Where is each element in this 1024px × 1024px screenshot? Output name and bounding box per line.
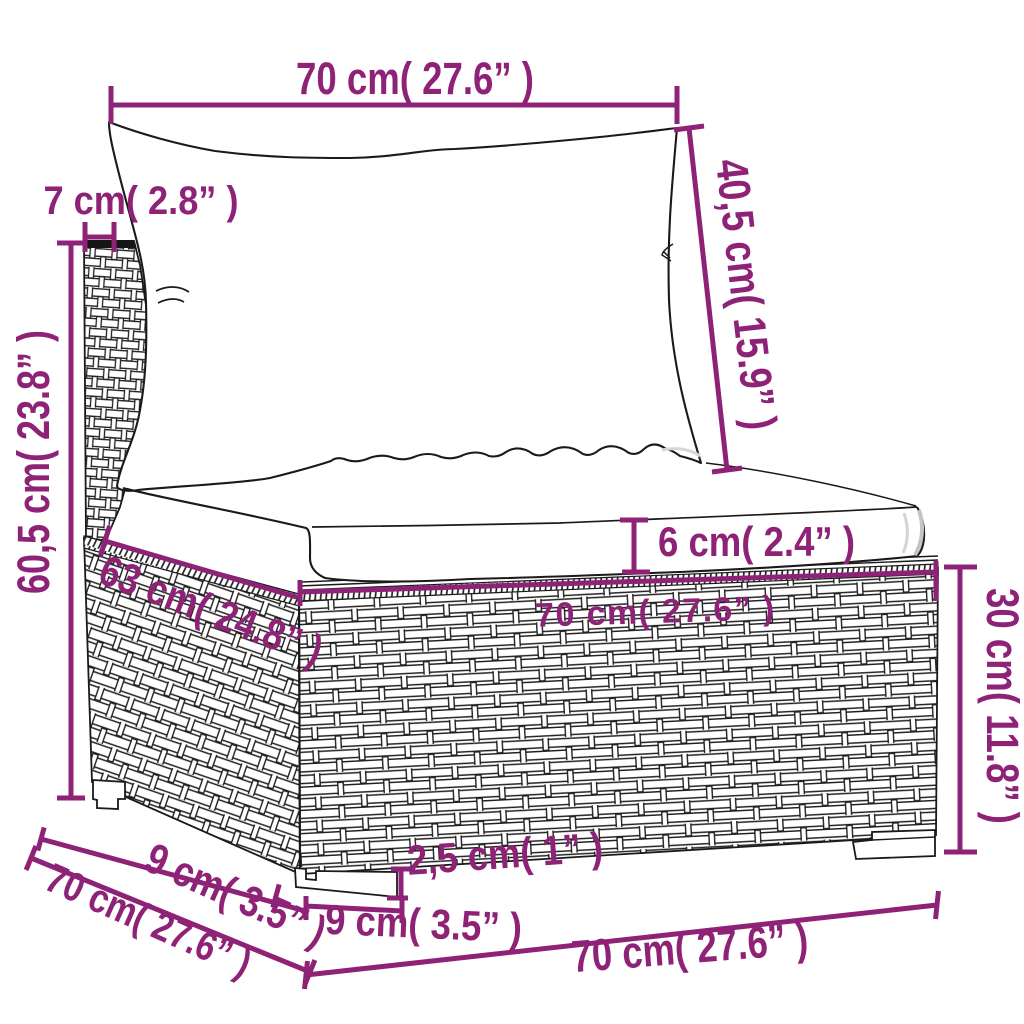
svg-text:60,5 cm( 23.8” ): 60,5 cm( 23.8” ) bbox=[8, 330, 59, 594]
svg-text:70 cm( 27.6” ): 70 cm( 27.6” ) bbox=[535, 589, 775, 634]
svg-text:7 cm( 2.8” ): 7 cm( 2.8” ) bbox=[44, 179, 239, 223]
svg-text:30 cm( 11.8” ): 30 cm( 11.8” ) bbox=[977, 588, 1024, 824]
svg-text:6 cm( 2.4” ): 6 cm( 2.4” ) bbox=[658, 518, 855, 565]
svg-text:9 cm( 3.5” ): 9 cm( 3.5” ) bbox=[324, 896, 523, 952]
svg-text:70 cm( 27.6” ): 70 cm( 27.6” ) bbox=[296, 53, 534, 104]
